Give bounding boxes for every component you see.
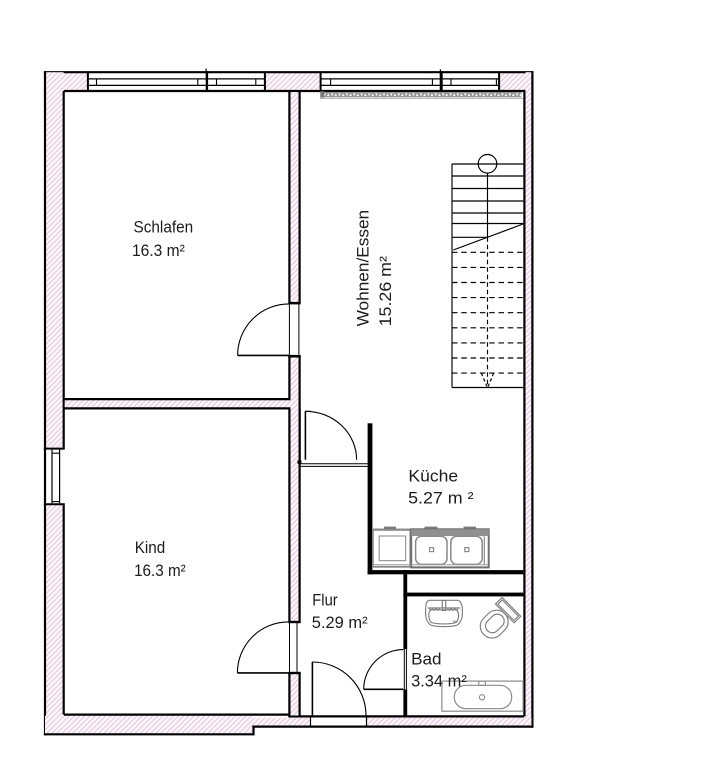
svg-text:5.27 m ²: 5.27 m ² bbox=[408, 489, 474, 507]
svg-text:Bad: Bad bbox=[411, 650, 441, 668]
svg-text:16.3 m²: 16.3 m² bbox=[134, 562, 186, 580]
svg-text:Schlafen: Schlafen bbox=[134, 219, 194, 237]
svg-text:Flur: Flur bbox=[312, 592, 338, 610]
svg-text:Wohnen/Essen: Wohnen/Essen bbox=[355, 210, 373, 327]
svg-text:Kind: Kind bbox=[135, 539, 166, 557]
svg-text:5.29 m²: 5.29 m² bbox=[312, 614, 368, 632]
svg-text:Küche: Küche bbox=[408, 467, 458, 485]
svg-text:16.3 m²: 16.3 m² bbox=[132, 242, 185, 260]
svg-text:3.34 m²: 3.34 m² bbox=[411, 672, 467, 690]
svg-text:15.26 m²: 15.26 m² bbox=[377, 255, 395, 326]
